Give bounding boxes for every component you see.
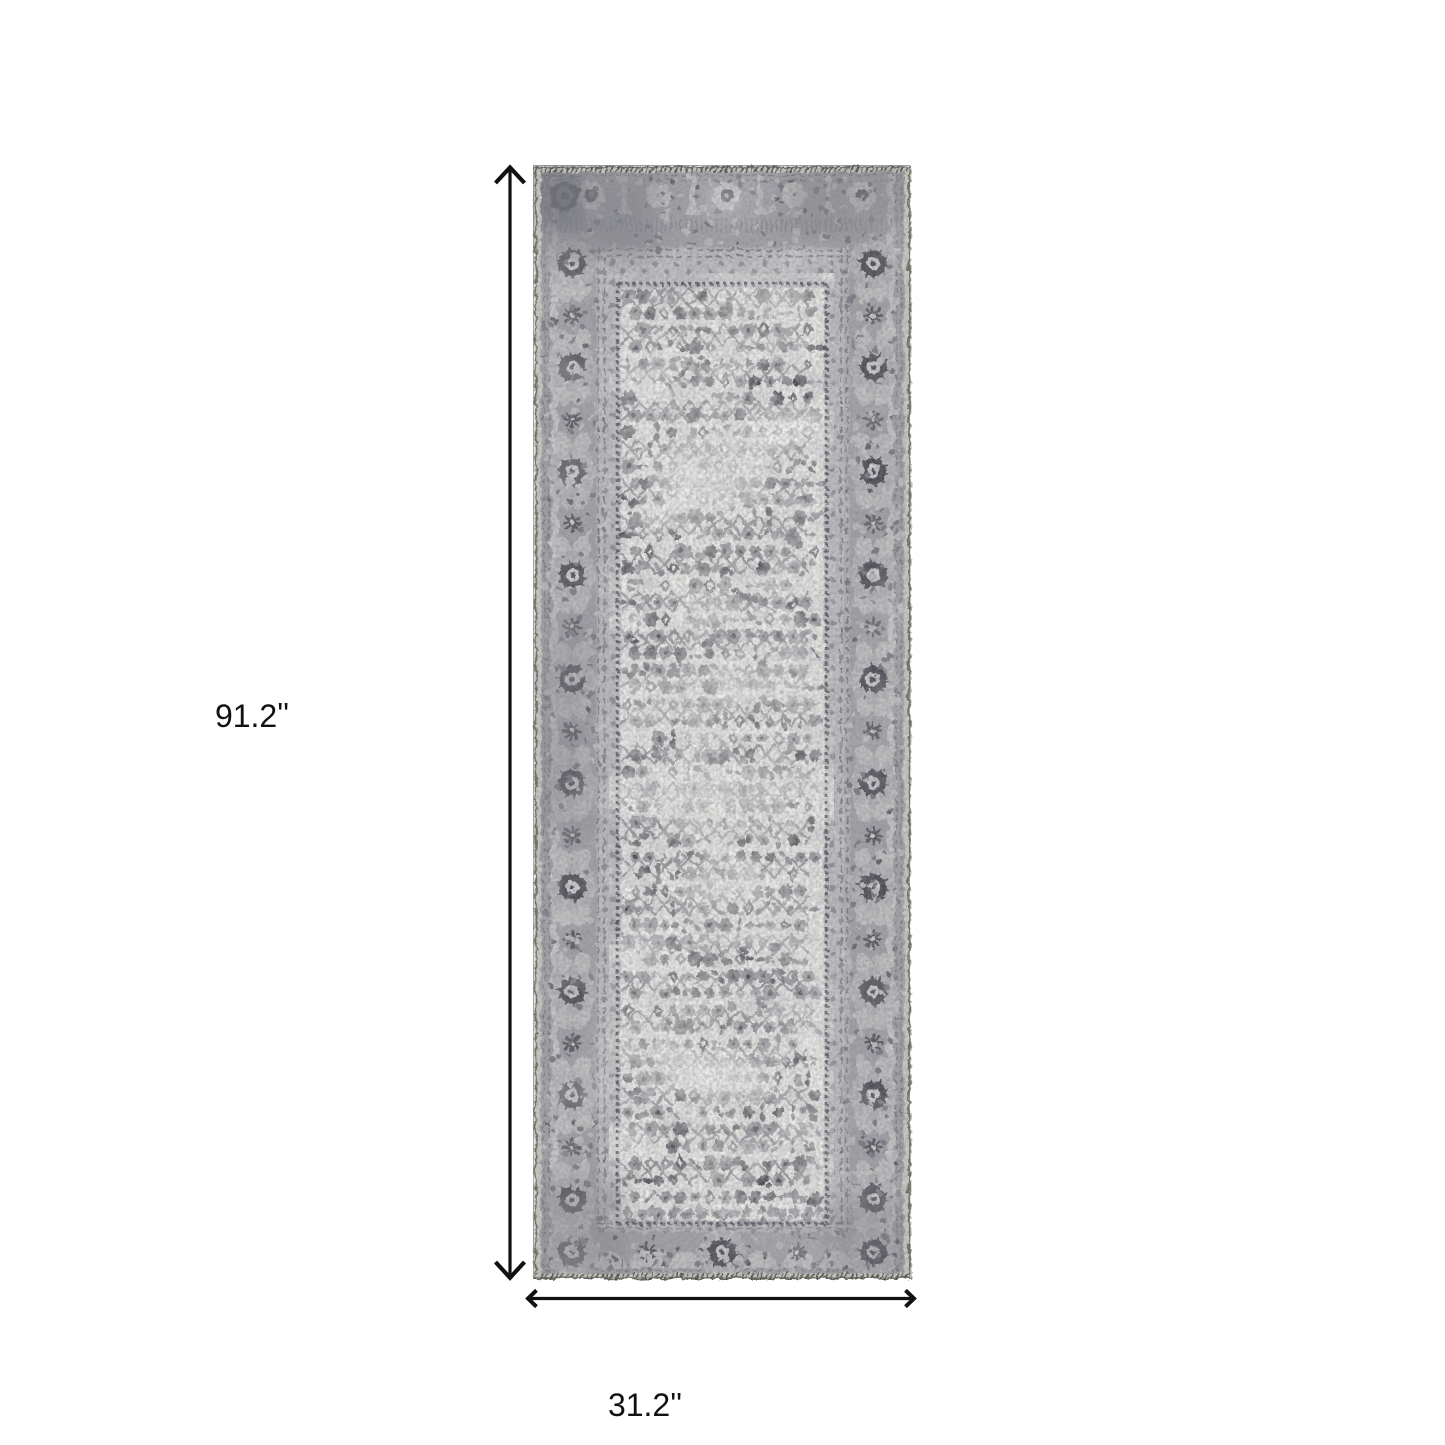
svg-text:31.2'': 31.2''	[608, 1386, 682, 1423]
svg-text:91.2'': 91.2''	[215, 696, 289, 734]
